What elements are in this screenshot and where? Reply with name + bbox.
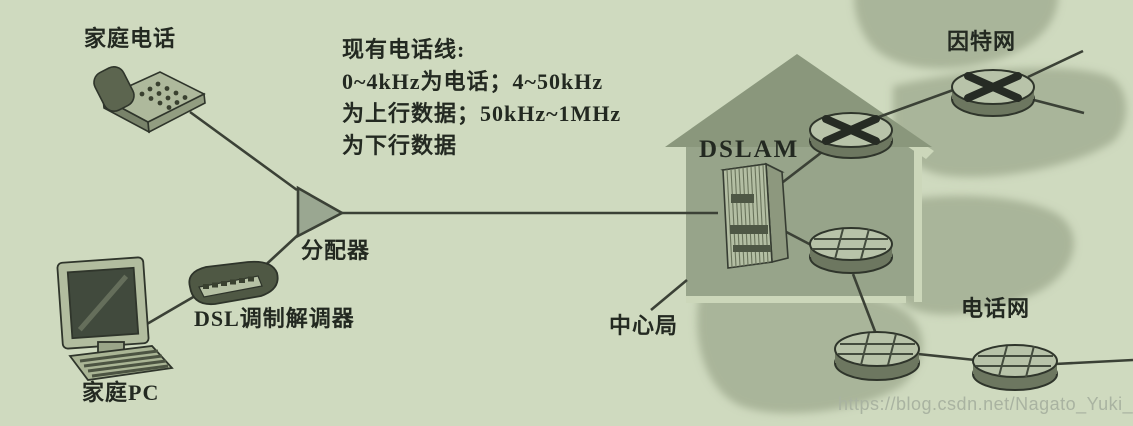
label-dslam: DSLAM [699, 135, 799, 165]
router-icon [810, 113, 892, 158]
internet-router-icon [952, 70, 1034, 116]
line-switch-switch [918, 354, 975, 360]
note-line-3: 为上行数据；50kHz~1MHz [342, 98, 621, 130]
dsl-modem-icon [189, 262, 277, 304]
label-dsl-modem: DSL调制解调器 [194, 306, 355, 332]
label-central-office: 中心局 [609, 313, 678, 339]
label-telephone-network: 电话网 [961, 296, 1030, 322]
splitter-triangle-icon [298, 188, 342, 236]
house-right-edge [914, 150, 922, 302]
note-line-2: 0~4kHz为电话；4~50kHz [342, 66, 621, 98]
switch-icon [810, 228, 892, 273]
line-phone-splitter [190, 112, 297, 190]
dslam-rack-icon [723, 164, 788, 268]
watermark-url: https://blog.csdn.net/Nagato_Yuki_SOS [838, 394, 1133, 415]
label-home-phone: 家庭电话 [84, 26, 176, 52]
dsl-access-network-diagram: 家庭电话 现有电话线: 0~4kHz为电话；4~50kHz 为上行数据；50kH… [0, 0, 1133, 426]
label-splitter: 分配器 [301, 238, 370, 264]
label-home-pc: 家庭PC [82, 380, 159, 406]
label-internet: 因特网 [947, 29, 1016, 55]
telephone-icon [90, 63, 205, 132]
note-line-1: 现有电话线: [342, 34, 621, 66]
line-central-office-pointer [651, 280, 687, 310]
phone-line-note: 现有电话线: 0~4kHz为电话；4~50kHz 为上行数据；50kHz~1MH… [342, 34, 621, 162]
house-bottom-edge [686, 296, 906, 303]
note-line-4: 为下行数据 [342, 130, 621, 162]
phone-switch-icon [973, 345, 1057, 390]
phone-switch-icon [835, 332, 919, 380]
line-phone-net-right [1055, 360, 1133, 364]
